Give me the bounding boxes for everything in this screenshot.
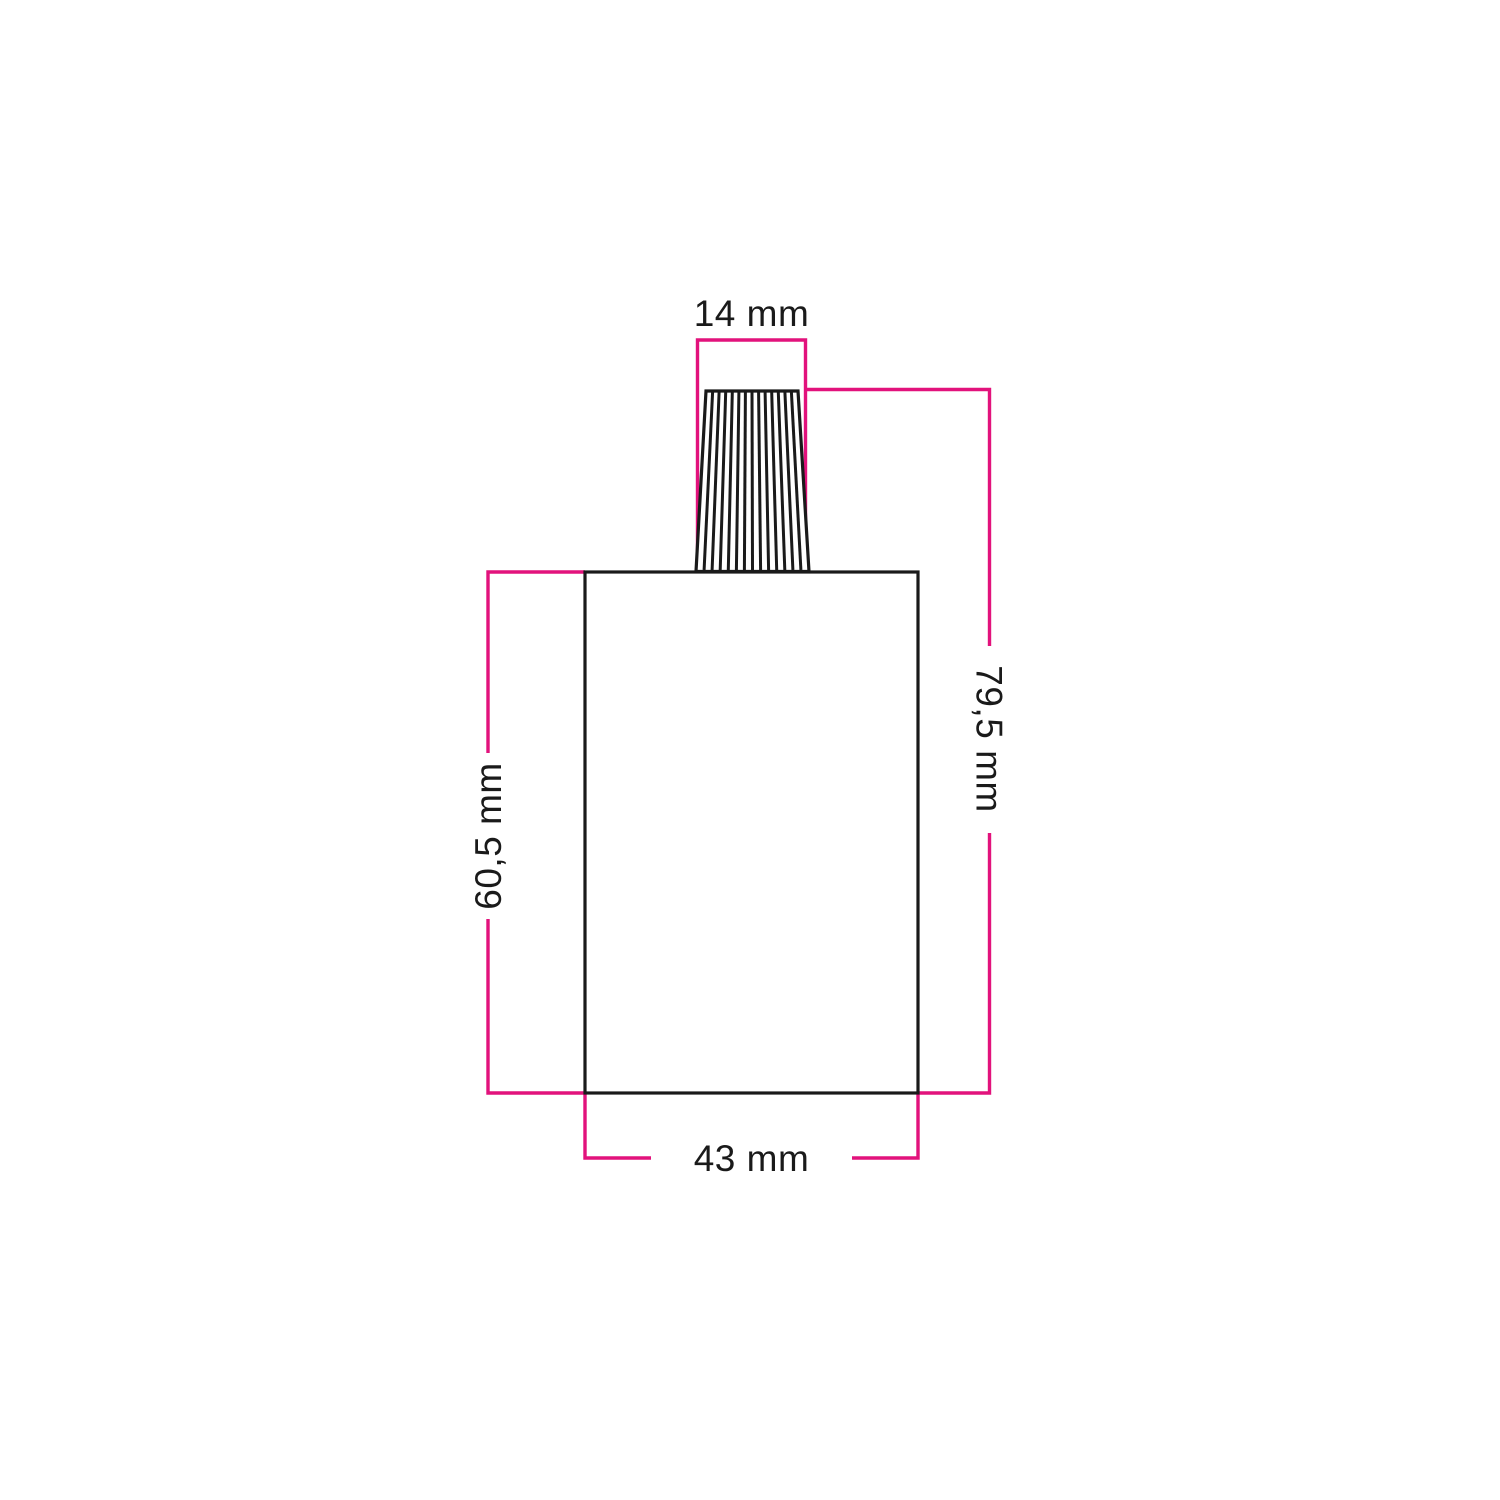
socket-body bbox=[585, 572, 918, 1093]
dimension-label-cable-grip-width: 14 mm bbox=[694, 293, 810, 334]
dimension-line-body-width-right bbox=[852, 1093, 918, 1158]
dimension-label-body-height: 60,5 mm bbox=[468, 762, 509, 909]
dimension-label-body-width: 43 mm bbox=[694, 1138, 810, 1179]
dimension-line-body-height-bottom bbox=[488, 919, 585, 1093]
dimension-line-body-width-left bbox=[585, 1093, 651, 1158]
dimension-line-total-height-bottom bbox=[918, 833, 990, 1093]
dimension-diagram: 14 mm 79,5 mm 60,5 mm 43 mm bbox=[0, 0, 1500, 1500]
strain-relief-cone bbox=[696, 391, 809, 572]
diagram-canvas: 14 mm 79,5 mm 60,5 mm 43 mm bbox=[0, 0, 1500, 1500]
dimension-line-body-height-top bbox=[488, 572, 585, 753]
dimension-label-total-height: 79,5 mm bbox=[969, 665, 1010, 812]
